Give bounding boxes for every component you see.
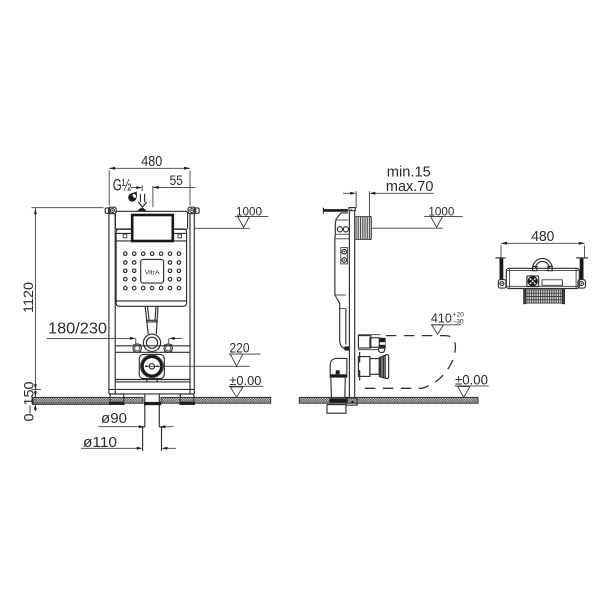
svg-text:220: 220: [230, 340, 250, 356]
svg-text:ø90: ø90: [101, 411, 127, 427]
svg-text:480: 480: [531, 228, 554, 245]
svg-text:max.70: max.70: [386, 179, 434, 195]
svg-text:55: 55: [169, 172, 183, 188]
svg-text:G½: G½: [113, 177, 132, 195]
svg-text:480: 480: [141, 153, 162, 170]
svg-text:180/230: 180/230: [48, 320, 107, 337]
svg-text:410: 410: [431, 311, 452, 326]
svg-text:1120: 1120: [20, 282, 36, 313]
svg-text:0–150: 0–150: [21, 381, 37, 421]
svg-text:±0.00: ±0.00: [455, 373, 488, 388]
svg-text:VitrA: VitrA: [145, 270, 160, 277]
